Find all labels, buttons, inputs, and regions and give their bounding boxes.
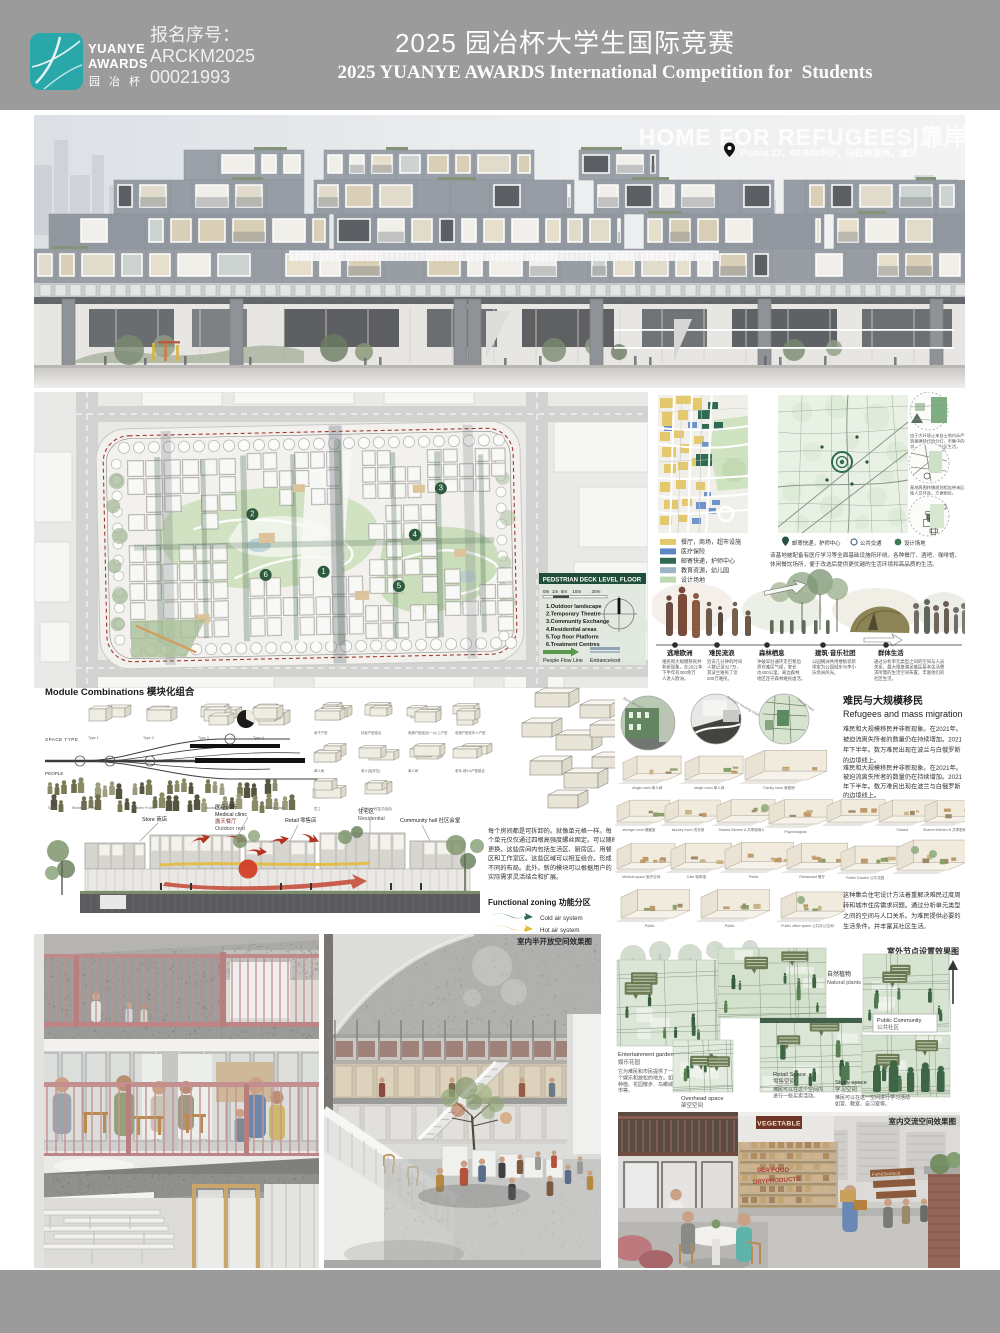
svg-text:SEA FOOD: SEA FOOD <box>757 1167 790 1174</box>
svg-text:laundry room 洗衣房: laundry room 洗衣房 <box>672 827 705 832</box>
svg-text:1.Outdoor landscape: 1.Outdoor landscape <box>546 604 602 610</box>
svg-text:难民与大规模移民: 难民与大规模移民 <box>842 694 923 707</box>
svg-text:被迫流离失所者的数量仍在持续增加。2021: 被迫流离失所者的数量仍在持续增加。2021 <box>843 736 963 744</box>
svg-text:群体生活: 群体生活 <box>878 648 904 657</box>
svg-text:种植、花园散步、鸟瞰城: 种植、花园散步、鸟瞰城 <box>618 1081 673 1088</box>
svg-text:难民和大规模移民并非新现象。在2021年。: 难民和大规模移民并非新现象。在2021年。 <box>843 764 962 772</box>
svg-text:Study space: Study space <box>835 1080 867 1086</box>
svg-text:餐厅，商场，超市设施: 餐厅，商场，超市设施 <box>681 538 741 546</box>
svg-text:Public: Public <box>749 875 759 879</box>
svg-text:设计场地: 设计场地 <box>904 539 926 547</box>
svg-text:3: 3 <box>439 483 444 492</box>
svg-text:这种集合住宅设计方法着重解决难民过度周: 这种集合住宅设计方法着重解决难民过度周 <box>843 891 961 899</box>
svg-text:邮寄快递，护师中心: 邮寄快递，护师中心 <box>681 557 735 565</box>
svg-text:Cafe 咖啡馆: Cafe 咖啡馆 <box>687 874 707 879</box>
svg-text:Public: Public <box>725 924 735 928</box>
svg-text:Medical space 医疗空间: Medical space 医疗空间 <box>622 874 661 879</box>
svg-text:住宅区: 住宅区 <box>358 807 375 815</box>
svg-text:医疗诊所: 医疗诊所 <box>215 803 237 811</box>
svg-text:难民可以在这一空间进行学习活动: 难民可以在这一空间进行学习活动 <box>835 1094 910 1101</box>
svg-text:Public: Public <box>645 924 655 928</box>
svg-text:Type 2: Type 2 <box>143 736 154 740</box>
svg-text:1: 1 <box>321 567 326 576</box>
svg-text:难民可以在这个空间内: 难民可以在这个空间内 <box>773 1086 823 1093</box>
svg-text:5: 5 <box>397 581 402 590</box>
svg-text:乐场洲风光。: 乐场洲风光。 <box>812 669 838 676</box>
svg-text:2.Temporary Theatre: 2.Temporary Theatre <box>546 612 601 618</box>
svg-text:自然植物: 自然植物 <box>827 970 851 978</box>
svg-text:之间的空间与人口关系。为难民提供必要的: 之间的空间与人口关系。为难民提供必要的 <box>843 912 961 920</box>
svg-text:标准户型组合: 标准户型组合 <box>361 730 382 735</box>
svg-text:的边境线上。: 的边境线上。 <box>843 757 880 765</box>
svg-text:Public office space 公共办公空间: Public office space 公共办公空间 <box>781 923 834 928</box>
svg-text:HOME FOR REFUGEES|靠岸: HOME FOR REFUGEES|靠岸 <box>639 124 965 150</box>
svg-text:Women 1-2 kids: Women 1-2 kids <box>72 806 97 810</box>
svg-text:电梯户型组合(一)以上户型: 电梯户型组合(一)以上户型 <box>408 730 448 735</box>
svg-text:架空空间: 架空空间 <box>681 1101 703 1108</box>
svg-text:不同的布局。此外。新的模块可以根据用户的: 不同的布局。此外。新的模块可以根据用户的 <box>488 864 612 872</box>
svg-text:公共交通: 公共交通 <box>860 539 882 547</box>
svg-text:storage room 储藏室: storage room 储藏室 <box>623 827 656 832</box>
svg-text:Outdoor rest: Outdoor rest <box>215 826 245 832</box>
svg-text:个单元仅仅通过四根高强度螺丝固定。可以随时: 个单元仅仅通过四根高强度螺丝固定。可以随时 <box>488 836 615 844</box>
svg-text:2: 2 <box>250 509 255 518</box>
svg-text:VEGETABLE: VEGETABLE <box>757 1121 801 1128</box>
svg-text:Shared: Shared <box>896 828 908 832</box>
svg-text:single room 单人间: single room 单人间 <box>694 785 725 790</box>
svg-text:转和城市住房需求问题。通过分析单元类型: 转和城市住房需求问题。通过分析单元类型 <box>843 902 961 910</box>
svg-text:Natural plants: Natural plants <box>827 980 861 986</box>
svg-text:Women +n kids: Women +n kids <box>132 806 156 810</box>
svg-text:Single: Single <box>48 806 58 810</box>
svg-text:室内交流空间效果图: 室内交流空间效果图 <box>889 1116 957 1126</box>
svg-text:Entrance/exit: Entrance/exit <box>590 658 621 664</box>
svg-text:年下半年。数万难民出现在波兰与白俄罗斯: 年下半年。数万难民出现在波兰与白俄罗斯 <box>843 782 961 790</box>
svg-text:地区连守森林难民虚活。: 地区连守森林难民虚活。 <box>757 675 805 682</box>
svg-text:区和工作室区。这些区域可以相互组合。形成: 区和工作室区。这些区域可以相互组合。形成 <box>488 855 612 863</box>
svg-text:如宣、教室、自习室等。: 如宣、教室、自习室等。 <box>835 1101 890 1108</box>
svg-text:Medical clinic: Medical clinic <box>215 812 247 818</box>
svg-text:Module Combinations 模块化组合: Module Combinations 模块化组合 <box>45 686 195 698</box>
svg-text:Piekna 22，00-549华沙，马佐维亚州，波兰: Piekna 22，00-549华沙，马佐维亚州，波兰 <box>740 147 918 158</box>
svg-text:员工: 员工 <box>314 807 321 811</box>
svg-text:使人交环连，方便相近。: 使人交环连，方便相近。 <box>910 490 956 497</box>
svg-text:零售空间: 零售空间 <box>773 1077 795 1085</box>
svg-text:的边境线上。: 的边境线上。 <box>843 792 880 800</box>
svg-text:公共社区: 公共社区 <box>877 1023 900 1031</box>
svg-text:Hot air system: Hot air system <box>540 927 580 934</box>
svg-text:4: 4 <box>412 530 417 539</box>
svg-text:Overhead space: Overhead space <box>681 1096 724 1102</box>
svg-text:老年-领4-6户型组合: 老年-领4-6户型组合 <box>455 768 485 773</box>
svg-text:单人间: 单人间 <box>408 768 419 773</box>
svg-text:单人间: 单人间 <box>314 768 325 773</box>
svg-text:Family room 家庭房: Family room 家庭房 <box>763 785 795 790</box>
svg-text:single room 单人间: single room 单人间 <box>632 785 663 790</box>
svg-text:Functional zoning 功能分区: Functional zoning 功能分区 <box>488 897 591 907</box>
svg-text:Entertainment garden: Entertainment garden <box>618 1052 674 1058</box>
svg-text:PEOPLE: PEOPLE <box>45 771 63 776</box>
svg-text:5.Top floor Platform: 5.Top floor Platform <box>546 634 599 640</box>
svg-text:0m 1m 5m 10m 20m: 0m 1m 5m 10m 20m <box>543 589 601 594</box>
svg-text:老人(加床位): 老人(加床位) <box>361 768 380 773</box>
svg-text:PEDSTRIAN DECK LEVEL FLOOR: PEDSTRIAN DECK LEVEL FLOOR <box>543 577 642 584</box>
svg-text:Refugees and mass migration: Refugees and mass migration <box>843 709 963 719</box>
svg-text:森林栖息: 森林栖息 <box>759 648 785 657</box>
svg-text:生活条件。并丰富其社区生活。: 生活条件。并丰富其社区生活。 <box>843 923 930 931</box>
svg-text:进行一些买卖活动。: 进行一些买卖活动。 <box>773 1093 818 1100</box>
svg-text:Community hall 社区会堂: Community hall 社区会堂 <box>400 816 461 824</box>
svg-text:年下半年。数万难民出现在波兰与白俄罗斯: 年下半年。数万难民出现在波兰与白俄罗斯 <box>843 746 961 754</box>
svg-text:Retail Space: Retail Space <box>773 1072 806 1078</box>
svg-text:Retail 零售店: Retail 零售店 <box>285 816 317 824</box>
svg-text:Shared Kitchen A 共享厨房A: Shared Kitchen A 共享厨房A <box>719 827 765 832</box>
svg-text:被迫流离失所者的数量仍在持续增加。2021: 被迫流离失所者的数量仍在持续增加。2021 <box>843 773 963 781</box>
svg-text:电梯户型老年人户型: 电梯户型老年人户型 <box>455 730 486 735</box>
svg-text:室内半开放空间效果图: 室内半开放空间效果图 <box>517 936 592 946</box>
svg-text:Cold air system: Cold air system <box>540 915 583 922</box>
svg-text:Shared Kitchen B 共享厨房B: Shared Kitchen B 共享厨房B <box>923 827 965 832</box>
svg-text:更换。这些房间内包括生活区、厨房区、用餐: 更换。这些房间内包括生活区、厨房区、用餐 <box>488 845 612 853</box>
svg-text:逃难欧洲: 逃难欧洲 <box>667 648 693 657</box>
svg-text:学习空间: 学习空间 <box>835 1085 857 1093</box>
svg-text:Public Community: Public Community <box>877 1018 922 1024</box>
svg-text:Service staff: Service staff <box>265 806 284 810</box>
svg-text:Store 商店: Store 商店 <box>142 815 168 823</box>
svg-text:Residential: Residential <box>358 816 385 822</box>
svg-text:People Flow Line: People Flow Line <box>543 658 583 664</box>
svg-text:亲子户型: 亲子户型 <box>314 730 328 735</box>
svg-text:Public Garden 公共花园: Public Garden 公共花园 <box>846 875 885 880</box>
svg-text:设计场地: 设计场地 <box>681 576 705 584</box>
svg-text:该基地被配备有医疗学习等全面基础设施所环绕。各种餐厅、酒吧、: 该基地被配备有医疗学习等全面基础设施所环绕。各种餐厅、酒吧、咖啡馆、 <box>770 551 960 559</box>
svg-text:邮寄快递，护师中心: 邮寄快递，护师中心 <box>792 539 841 547</box>
svg-text:6: 6 <box>263 570 268 579</box>
svg-text:Type 1: Type 1 <box>88 736 99 740</box>
svg-text:3.Community Exchange: 3.Community Exchange <box>546 619 609 625</box>
svg-text:Psychological: Psychological <box>784 830 806 834</box>
svg-text:难民和大规模移民并非新现象。在2021年。: 难民和大规模移民并非新现象。在2021年。 <box>843 725 962 733</box>
svg-text:4.Residential areas: 4.Residential areas <box>546 627 597 633</box>
svg-text:医疗保险: 医疗保险 <box>681 548 705 556</box>
svg-text:它为难民和市民提供了一: 它为难民和市民提供了一 <box>618 1068 673 1075</box>
svg-text:难民流浪: 难民流浪 <box>708 648 735 657</box>
svg-text:社区生活。: 社区生活。 <box>874 675 896 682</box>
svg-text:教育资源，幼儿园: 教育资源，幼儿园 <box>681 566 729 574</box>
svg-text:每个房间都是可拆卸的。就像单元格一样。每: 每个房间都是可拆卸的。就像单元格一样。每 <box>488 827 612 835</box>
svg-text:休闲餐饮场所，便于改选后提供更优越的生活环境和高品质的生活。: 休闲餐饮场所，便于改选后提供更优越的生活环境和高品质的生活。 <box>770 560 938 568</box>
svg-text:市等。: 市等。 <box>618 1087 633 1094</box>
svg-text:露天餐厅: 露天餐厅 <box>215 817 237 825</box>
svg-text:娱乐花园: 娱乐花园 <box>618 1058 641 1066</box>
svg-text:实际需求灵活结合和扩展。: 实际需求灵活结合和扩展。 <box>488 873 562 881</box>
svg-text:建筑·音乐社团: 建筑·音乐社团 <box>814 648 855 657</box>
svg-text:200万难民。: 200万难民。 <box>707 675 732 682</box>
svg-text:人进入欧洲。: 人进入欧洲。 <box>662 675 688 682</box>
svg-text:Restaurant 餐厅: Restaurant 餐厅 <box>799 874 825 879</box>
svg-text:SPACE TYPE: SPACE TYPE <box>45 737 78 742</box>
svg-text:个娱乐和放松的地方。如: 个娱乐和放松的地方。如 <box>618 1074 673 1081</box>
